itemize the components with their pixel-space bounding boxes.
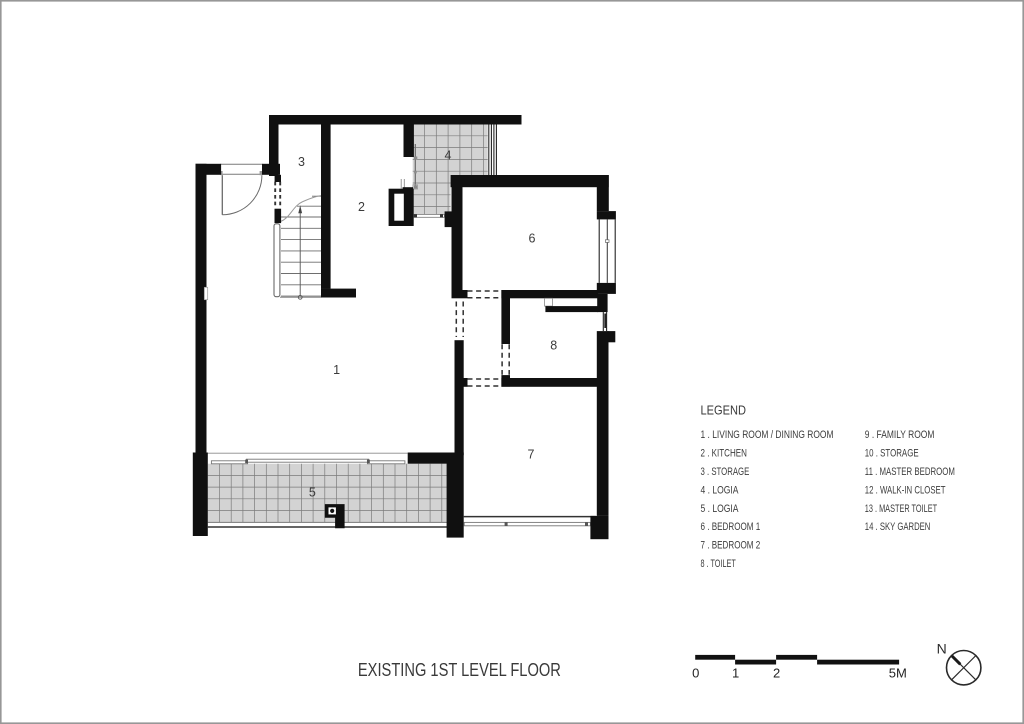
svg-text:7: 7 (528, 447, 535, 461)
svg-text:12 . WALK-IN CLOSET: 12 . WALK-IN CLOSET (865, 484, 946, 496)
svg-text:5M: 5M (889, 666, 907, 681)
svg-text:EXISTING 1ST LEVEL FLOOR: EXISTING 1ST LEVEL FLOOR (358, 659, 561, 680)
svg-text:2: 2 (773, 666, 780, 681)
svg-text:N: N (937, 640, 947, 656)
svg-text:2: 2 (358, 200, 365, 214)
svg-text:10 . STORAGE: 10 . STORAGE (865, 447, 919, 459)
svg-text:5: 5 (309, 486, 316, 500)
svg-text:11 . MASTER BEDROOM: 11 . MASTER BEDROOM (865, 466, 955, 478)
svg-text:4 . LOGIA: 4 . LOGIA (701, 484, 740, 496)
svg-text:2 . KITCHEN: 2 . KITCHEN (701, 447, 747, 459)
svg-text:9 . FAMILY ROOM: 9 . FAMILY ROOM (865, 429, 935, 441)
svg-text:LEGEND: LEGEND (701, 403, 747, 417)
svg-text:3: 3 (298, 155, 305, 169)
svg-text:5 . LOGIA: 5 . LOGIA (701, 503, 740, 515)
svg-text:8 . TOILET: 8 . TOILET (701, 558, 737, 570)
svg-text:7 . BEDROOM 2: 7 . BEDROOM 2 (701, 540, 761, 552)
svg-text:6: 6 (529, 232, 536, 246)
svg-text:3 . STORAGE: 3 . STORAGE (701, 466, 750, 478)
svg-text:1 . LIVING ROOM / DINING ROOM: 1 . LIVING ROOM / DINING ROOM (701, 429, 834, 441)
svg-text:1: 1 (333, 363, 340, 377)
svg-text:4: 4 (445, 149, 452, 163)
svg-text:14 . SKY GARDEN: 14 . SKY GARDEN (865, 521, 931, 533)
svg-text:13 . MASTER TOILET: 13 . MASTER TOILET (865, 503, 938, 515)
svg-text:6 . BEDROOM 1: 6 . BEDROOM 1 (701, 521, 761, 533)
svg-text:1: 1 (732, 666, 739, 681)
svg-text:0: 0 (692, 666, 699, 681)
svg-text:8: 8 (550, 339, 557, 353)
